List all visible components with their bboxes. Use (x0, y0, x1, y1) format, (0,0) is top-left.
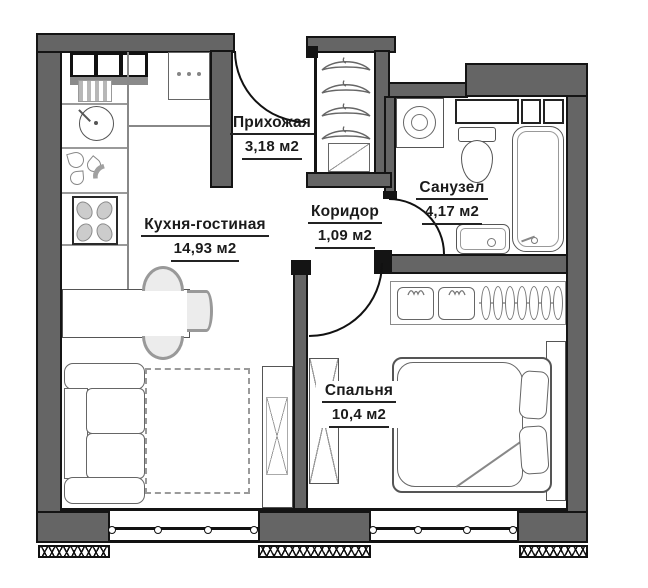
rug-dashed-zone (145, 368, 250, 494)
stove-icon (72, 196, 118, 245)
sofa-backrest (64, 388, 88, 479)
sofa-cushion (86, 433, 145, 479)
wall-bottom-left-pier (36, 511, 110, 543)
window-joint-icon (250, 526, 258, 534)
window-joint-icon (463, 526, 471, 534)
wall-corridor-top (388, 82, 468, 98)
window-joint-icon (108, 526, 116, 534)
insulation-hatch (258, 545, 371, 558)
room-name: Спальня (322, 381, 396, 403)
sofa-cushion (86, 388, 145, 434)
room-name: Санузел (416, 178, 487, 200)
wall-left (36, 33, 62, 513)
wall-living-bedroom-divider (293, 266, 308, 510)
room-area: 1,09 м2 (315, 227, 375, 249)
room-area: 14,93 м2 (171, 240, 240, 262)
room-label-corridor: Коридор 1,09 м2 (303, 202, 387, 249)
toilet-bowl-icon (461, 140, 493, 183)
chair-icon (142, 266, 184, 291)
window-joint-icon (154, 526, 162, 534)
dish-rack-icon (66, 150, 86, 170)
hanger-icon (319, 125, 373, 142)
room-name: Кухня-гостиная (141, 215, 269, 237)
hanging-clothes-icon (517, 286, 527, 320)
room-area: 4,17 м2 (422, 203, 482, 225)
pillow-icon (518, 425, 549, 475)
window-bedroom (371, 527, 517, 543)
collar-icon (406, 286, 426, 296)
electric-panel-icon (168, 52, 210, 100)
counter-divider (62, 147, 127, 149)
hanging-clothes-icon (529, 286, 539, 320)
window-living-room (110, 527, 258, 543)
bath-cabinet-icon (543, 99, 564, 124)
bed-icon (392, 357, 552, 493)
room-name: Прихожая (230, 113, 314, 135)
pillow-icon (518, 370, 549, 420)
dish-rack-icon (69, 170, 84, 185)
wall-closet-bottom (306, 172, 392, 188)
closet-shelf-row (390, 281, 566, 325)
hanging-clothes-icon (505, 286, 515, 320)
blanket-icon (397, 362, 523, 487)
tv-console (262, 366, 293, 508)
wall-top (36, 33, 235, 53)
hanging-clothes-icon (541, 286, 551, 320)
insulation-hatch (519, 545, 588, 558)
wall-bottom-right-pier (517, 511, 588, 543)
chair-icon (187, 290, 213, 332)
bathroom-sink-icon (456, 224, 510, 254)
bedroom-door-swing-icon (309, 263, 383, 337)
hanger-icon (319, 102, 373, 119)
room-area: 10,4 м2 (329, 406, 389, 428)
hanging-clothes-icon (553, 286, 563, 320)
room-label-hallway: Прихожая 3,18 м2 (220, 113, 324, 160)
window-joint-icon (369, 526, 377, 534)
counter-divider (62, 192, 127, 194)
bath-cabinet-icon (521, 99, 541, 124)
hanging-clothes-icon (493, 286, 503, 320)
counter-edge-line (127, 52, 129, 290)
floor-plan: Прихожая 3,18 м2 Кухня-гостиная 14,93 м2… (0, 0, 648, 588)
wall-top-right-block (465, 63, 588, 97)
room-label-bedroom: Спальня 10,4 м2 (316, 381, 402, 428)
hanging-clothes-icon (481, 286, 491, 320)
washing-machine-icon (396, 98, 444, 148)
wall-right (566, 95, 588, 513)
collar-icon (447, 286, 467, 296)
bathtub-icon (512, 126, 564, 252)
room-label-bathroom: Санузел 4,17 м2 (408, 178, 496, 225)
kitchen-sink-icon (79, 106, 114, 141)
sofa-armrest (64, 363, 145, 390)
counter-edge-line (127, 125, 210, 127)
room-area: 3,18 м2 (242, 138, 302, 160)
wall-bottom-middle-pier (258, 511, 371, 543)
wall-cabinet-icon (120, 52, 148, 78)
sofa-armrest (64, 477, 145, 504)
hanger-icon (319, 56, 373, 73)
storage-box-icon (328, 143, 370, 172)
chair-icon (142, 336, 184, 360)
room-name: Коридор (308, 202, 382, 224)
dining-table (62, 289, 190, 338)
insulation-hatch (38, 545, 110, 558)
wall-bathroom-bottom (376, 254, 568, 274)
wall-cabinet-icon (95, 52, 122, 78)
bath-cabinet-icon (455, 99, 519, 124)
door-post (291, 260, 311, 275)
window-joint-icon (509, 526, 517, 534)
wall-cabinet-icon (70, 52, 97, 78)
radiator-icon (78, 80, 112, 102)
hanger-icon (319, 79, 373, 96)
window-joint-icon (204, 526, 212, 534)
counter-divider (62, 103, 127, 105)
window-joint-icon (414, 526, 422, 534)
room-label-kitchen-living: Кухня-гостиная 14,93 м2 (138, 215, 272, 262)
